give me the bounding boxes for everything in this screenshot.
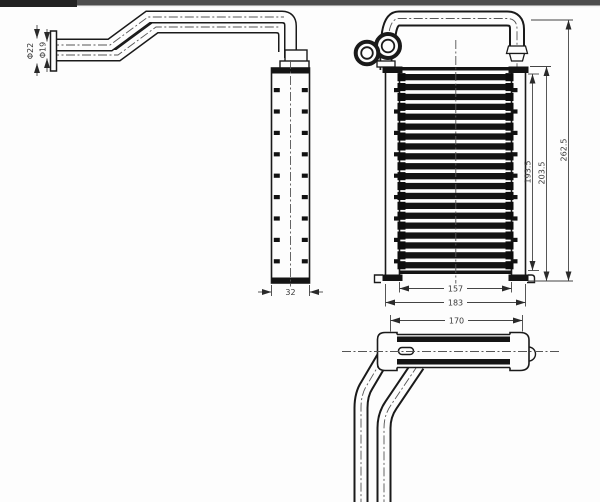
drawing-detail <box>512 88 518 92</box>
drawing-detail <box>274 216 280 220</box>
pipe-flange <box>51 31 57 71</box>
drawing-detail <box>394 216 400 220</box>
drawing-detail <box>302 195 308 199</box>
drawing-detail <box>398 73 406 81</box>
top-bar-highlight <box>77 6 600 8</box>
drawing-detail <box>302 174 308 178</box>
technical-drawing: Φ22 Φ19 32 <box>0 0 600 502</box>
dim-core-height: 203.5 <box>538 162 547 185</box>
drawing-detail <box>506 142 514 150</box>
drawing-detail <box>274 109 280 113</box>
drawing-detail <box>302 109 308 113</box>
drawing-detail <box>274 195 280 199</box>
drawing-detail <box>506 182 514 190</box>
drawing-detail <box>512 216 518 220</box>
drawing-detail <box>394 259 400 263</box>
pipe-side-view: Φ22 Φ19 <box>26 17 291 76</box>
drawing-detail <box>398 113 406 121</box>
pipe-diameter-dimensions: Φ22 Φ19 <box>26 25 48 76</box>
drawing-detail <box>398 202 406 210</box>
drawing-detail <box>302 216 308 220</box>
drawing-detail <box>506 202 514 210</box>
drawing-detail <box>274 238 280 242</box>
core-front-view: 193.5 203.5 262.5 157 183 <box>356 19 573 308</box>
drawing-detail <box>506 123 514 131</box>
drawing-detail <box>302 238 308 242</box>
drawing-detail <box>506 222 514 230</box>
core-side-view: 32 <box>258 50 323 297</box>
drawing-detail <box>512 131 518 135</box>
drawing-detail <box>274 88 280 92</box>
dim-core-width: 157 <box>448 285 463 294</box>
drawing-detail <box>274 131 280 135</box>
dim-core-depth: 32 <box>285 288 295 297</box>
drawing-detail <box>398 241 406 249</box>
drawing-detail <box>398 142 406 150</box>
dim-tank-width: 183 <box>448 299 463 308</box>
window-top-bar <box>0 0 600 7</box>
drawing-detail <box>394 195 400 199</box>
drawing-detail <box>512 174 518 178</box>
drawing-detail <box>398 251 406 259</box>
drawing-detail <box>398 93 406 101</box>
core-top-view: 170 <box>342 315 560 502</box>
drawing-detail <box>506 113 514 121</box>
drawing-detail <box>302 131 308 135</box>
top-bar-left-segment <box>0 0 77 7</box>
drawing-detail <box>398 182 406 190</box>
drawing-detail <box>394 109 400 113</box>
drawing-detail <box>506 73 514 81</box>
width-dimensions: 157 183 <box>386 282 526 308</box>
drawing-detail <box>506 93 514 101</box>
drawing-detail <box>506 162 514 170</box>
drawing-detail <box>274 174 280 178</box>
drawing-detail <box>506 241 514 249</box>
drawing-detail <box>398 162 406 170</box>
core-depth-dimension: 32 <box>258 285 323 297</box>
left-mount-foot <box>375 275 384 283</box>
drawing-detail <box>512 238 518 242</box>
drawing-detail <box>398 222 406 230</box>
drawing-detail <box>274 152 280 156</box>
drawing-detail <box>512 109 518 113</box>
drawing-detail <box>398 123 406 131</box>
drawing-detail <box>394 88 400 92</box>
drawing-detail <box>394 131 400 135</box>
drawing-detail <box>302 88 308 92</box>
drawing-detail <box>512 152 518 156</box>
drawing-detail <box>394 174 400 178</box>
drawing-detail <box>394 152 400 156</box>
dim-top-width: 170 <box>449 317 464 326</box>
drawing-detail <box>302 152 308 156</box>
drawing-detail <box>512 259 518 263</box>
drawing-detail <box>302 259 308 263</box>
top-bar <box>0 0 600 6</box>
body-slot <box>399 348 414 355</box>
dim-pipe-outer-dia: Φ22 <box>26 43 35 59</box>
drawing-canvas: Φ22 Φ19 32 <box>0 0 600 502</box>
dim-overall-height: 262.5 <box>560 139 569 162</box>
drawing-detail <box>394 238 400 242</box>
height-dimensions: 193.5 203.5 262.5 <box>524 20 574 281</box>
drawing-detail <box>506 251 514 259</box>
pipe-end-rings <box>356 34 400 64</box>
drawing-detail <box>512 195 518 199</box>
dim-pipe-inner-dia: Φ19 <box>39 42 48 58</box>
top-width-dimension: 170 <box>391 315 523 332</box>
drawing-detail <box>274 259 280 263</box>
dim-fin-height: 193.5 <box>524 161 533 184</box>
